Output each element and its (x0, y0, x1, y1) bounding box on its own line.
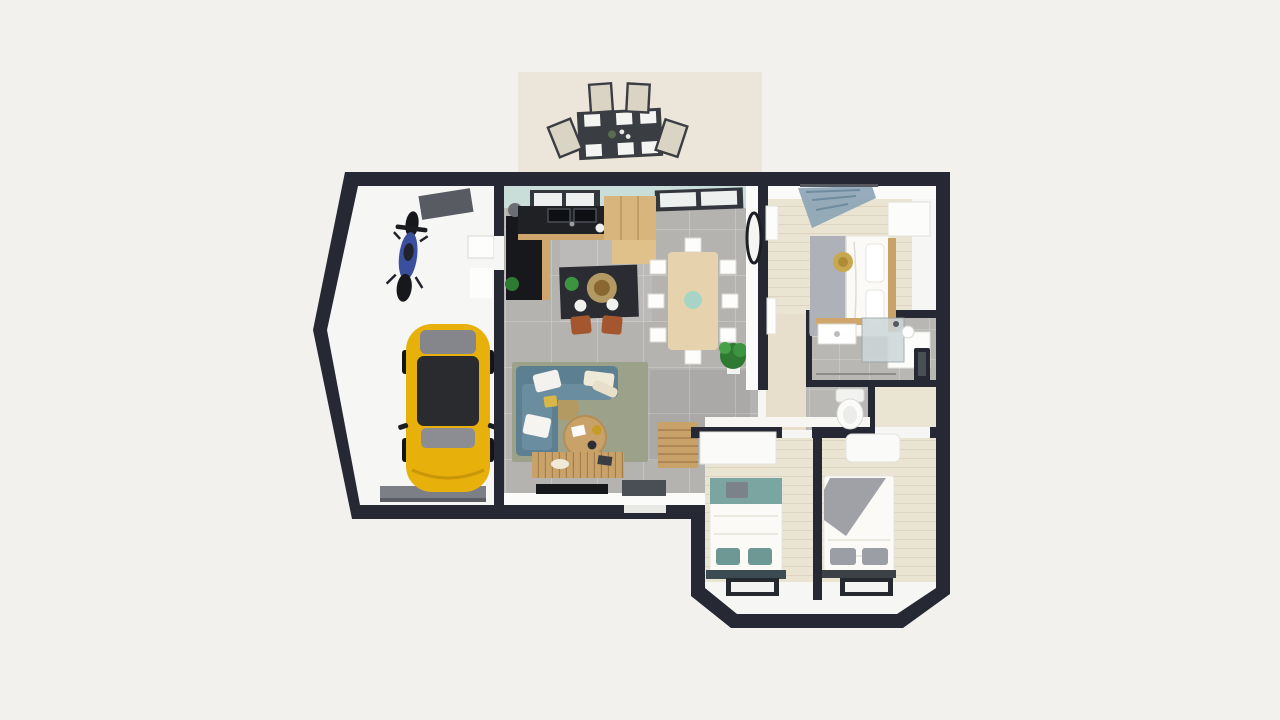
dining-chair (720, 260, 736, 274)
shower-head (893, 321, 899, 327)
window-pane (566, 193, 594, 206)
coffee-table-top (564, 416, 606, 458)
bed-pillow-teal (716, 548, 740, 565)
coffee-table (564, 416, 606, 458)
dish (596, 224, 605, 233)
console-bowl (551, 459, 569, 469)
wardrobe-unit (888, 202, 930, 236)
terrace (518, 72, 762, 183)
bedroom1-door-leaf (767, 298, 776, 334)
garage-door-track (380, 498, 486, 502)
window-pane (845, 582, 888, 592)
wall-clock (747, 213, 761, 263)
curtain-rod (800, 184, 878, 187)
bedroom3-vestibule-floor (875, 387, 936, 427)
outdoor-chair-top-2 (626, 83, 649, 112)
pendant-lamp (902, 326, 914, 338)
garage-door-opening (494, 236, 504, 270)
sofa-cushion-yellow (543, 395, 557, 408)
sink-basin (574, 209, 596, 222)
sink-basin (548, 209, 570, 222)
window-pane (701, 191, 737, 206)
chair-seat (589, 83, 613, 112)
plant-foliage (733, 343, 747, 357)
kitchen-plant (505, 277, 519, 291)
bar-stool-2 (601, 315, 622, 335)
floor-plan-svg (0, 0, 1280, 720)
kitchen-counter-trim (518, 234, 608, 240)
bar-stool-1 (570, 315, 592, 335)
stool-seat (601, 315, 622, 335)
tv (536, 484, 608, 494)
bedroom2-window (726, 578, 779, 596)
bedroom3-window (840, 578, 893, 596)
sink-drain (834, 331, 840, 337)
bed-teal (706, 478, 786, 579)
bed-pillow-grey (830, 548, 856, 565)
garage-cabinet (470, 268, 492, 298)
garage-door-leaf (468, 236, 494, 258)
plant-foliage (719, 342, 731, 354)
wood-cabinet-low (612, 240, 656, 264)
bed-grey-cushion (726, 482, 748, 498)
wardrobe-unit (846, 434, 900, 462)
placemat (586, 144, 603, 157)
wardrobe-unit (700, 432, 776, 464)
bed-pillow-grey (862, 548, 888, 565)
wc (836, 389, 864, 429)
bed-base (706, 570, 786, 579)
chair-seat (626, 83, 649, 112)
dining-chair (648, 294, 664, 308)
entry-door (624, 505, 666, 513)
dining-chair (685, 350, 701, 364)
teal-vase (684, 291, 702, 309)
outdoor-dining-table (577, 108, 663, 160)
placemat (584, 114, 601, 127)
window-pane (660, 192, 696, 207)
placemat (617, 142, 634, 155)
wall-bedroom2-bedroom3 (813, 438, 822, 600)
car-roof (417, 356, 479, 426)
stool-seat (570, 315, 592, 335)
dining-chair (650, 260, 666, 274)
bedroom1-dresser (766, 206, 778, 240)
dining-chair (722, 294, 738, 308)
table-item-gold (592, 425, 602, 435)
floor-plan-canvas (0, 0, 1280, 720)
kitchen-island (559, 265, 639, 320)
bedroom-2 (700, 432, 786, 596)
car-rear-window (420, 330, 476, 354)
bed-pillow (866, 244, 884, 282)
toilet-seat (843, 406, 857, 424)
bed-grey (822, 476, 896, 578)
bed-base (822, 570, 896, 578)
car-windshield (421, 428, 475, 448)
outdoor-chair-top-1 (589, 83, 613, 112)
entry-door-mat (622, 480, 666, 496)
round-gold-cushion-inner (838, 257, 848, 267)
window-pane (731, 582, 774, 592)
table-item-dark (588, 441, 597, 450)
radiator-inner (918, 352, 926, 376)
window-pane (534, 193, 562, 206)
wall-garage-living (494, 186, 504, 505)
faucet (570, 222, 575, 227)
tv-console (532, 452, 624, 478)
placemat (616, 112, 633, 125)
dining-chair (720, 328, 736, 342)
wood-cabinet-block (604, 196, 656, 240)
wall-bedroom3-top-end (930, 427, 936, 438)
dining-chair (685, 238, 701, 252)
living-bottom-wall-face (504, 493, 705, 505)
yellow-car (398, 324, 499, 492)
dining-chair (650, 328, 666, 342)
bed-pillow-teal (748, 548, 772, 565)
living-window (655, 187, 744, 211)
